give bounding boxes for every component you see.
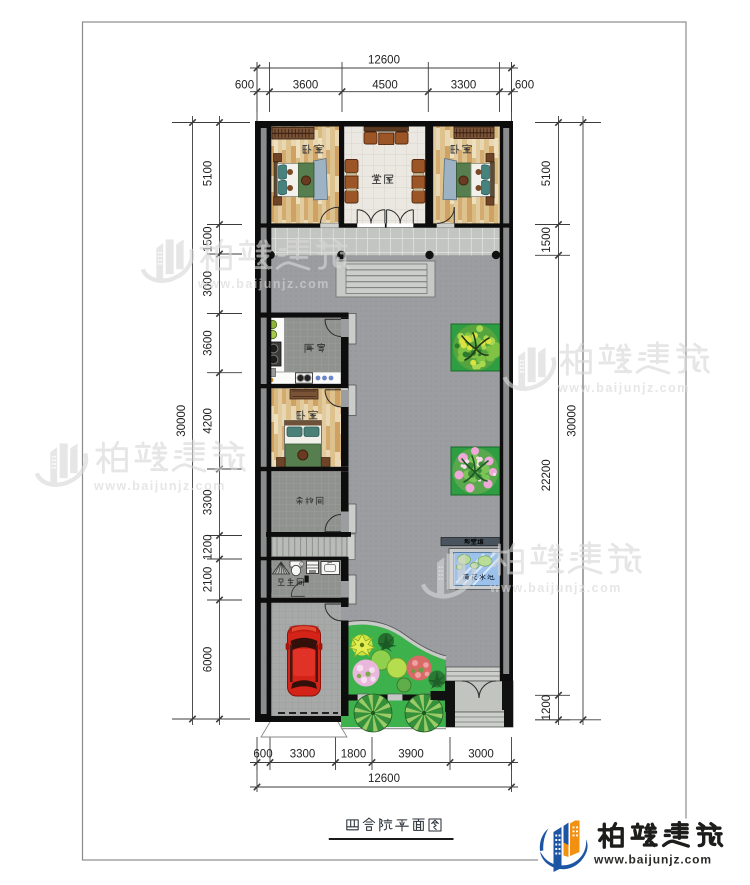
svg-text:3300: 3300 bbox=[203, 490, 215, 516]
svg-text:600: 600 bbox=[253, 749, 272, 761]
svg-text:5100: 5100 bbox=[541, 161, 553, 187]
svg-text:1800: 1800 bbox=[341, 749, 367, 761]
svg-text:3300: 3300 bbox=[290, 749, 316, 761]
svg-text:22200: 22200 bbox=[541, 459, 553, 491]
svg-text:1500: 1500 bbox=[541, 227, 553, 253]
svg-text:12600: 12600 bbox=[368, 773, 400, 785]
svg-text:www.baijunjz.com: www.baijunjz.com bbox=[93, 479, 226, 493]
svg-text:600: 600 bbox=[515, 80, 534, 92]
svg-text:4200: 4200 bbox=[203, 408, 215, 434]
svg-text:5100: 5100 bbox=[203, 161, 215, 187]
svg-text:www.baijunjz.com: www.baijunjz.com bbox=[489, 581, 622, 595]
svg-text:3600: 3600 bbox=[203, 330, 215, 356]
svg-text:30000: 30000 bbox=[567, 405, 579, 437]
svg-text:www.baijunjz.com: www.baijunjz.com bbox=[557, 381, 690, 395]
svg-text:6000: 6000 bbox=[203, 647, 215, 673]
svg-text:3600: 3600 bbox=[293, 80, 319, 92]
svg-text:1200: 1200 bbox=[203, 535, 215, 561]
svg-text:4500: 4500 bbox=[372, 80, 398, 92]
svg-text:2100: 2100 bbox=[203, 567, 215, 593]
svg-text:www.baijunjz.com: www.baijunjz.com bbox=[593, 853, 712, 867]
svg-text:1200: 1200 bbox=[541, 695, 553, 721]
svg-text:600: 600 bbox=[235, 80, 254, 92]
svg-text:www.baijunjz.com: www.baijunjz.com bbox=[197, 277, 330, 291]
svg-text:12600: 12600 bbox=[368, 55, 400, 67]
svg-text:3300: 3300 bbox=[451, 80, 477, 92]
svg-text:3000: 3000 bbox=[468, 749, 494, 761]
svg-text:3900: 3900 bbox=[398, 749, 424, 761]
svg-text:30000: 30000 bbox=[176, 405, 188, 437]
